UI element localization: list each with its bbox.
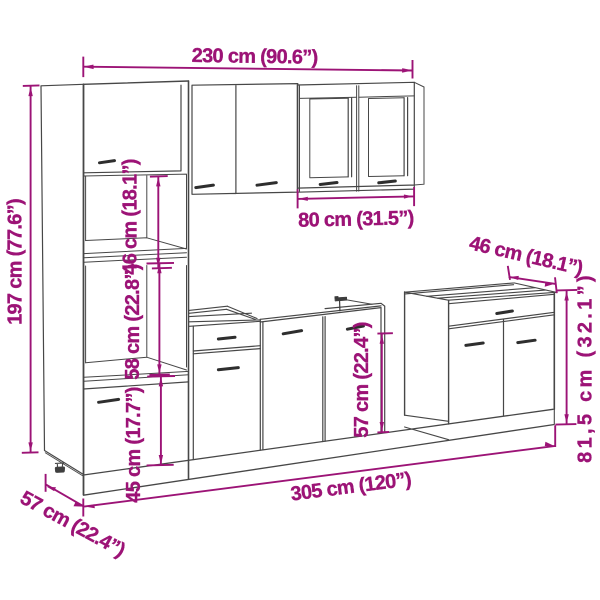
svg-text:46 cm (18.1”): 46 cm (18.1”) <box>120 159 142 274</box>
svg-text:80 cm (31.5”): 80 cm (31.5”) <box>298 207 414 231</box>
svg-text:57 cm (22.4”): 57 cm (22.4”) <box>351 322 373 437</box>
svg-text:58 cm (22.8”): 58 cm (22.8”) <box>122 264 144 379</box>
svg-text:230 cm (90.6”): 230 cm (90.6”) <box>192 45 318 69</box>
svg-text:81,5 cm (32.1”): 81,5 cm (32.1”) <box>575 272 597 463</box>
svg-text:197 cm (77.6”): 197 cm (77.6”) <box>5 199 27 325</box>
svg-text:45 cm (17.7”): 45 cm (17.7”) <box>123 387 145 502</box>
